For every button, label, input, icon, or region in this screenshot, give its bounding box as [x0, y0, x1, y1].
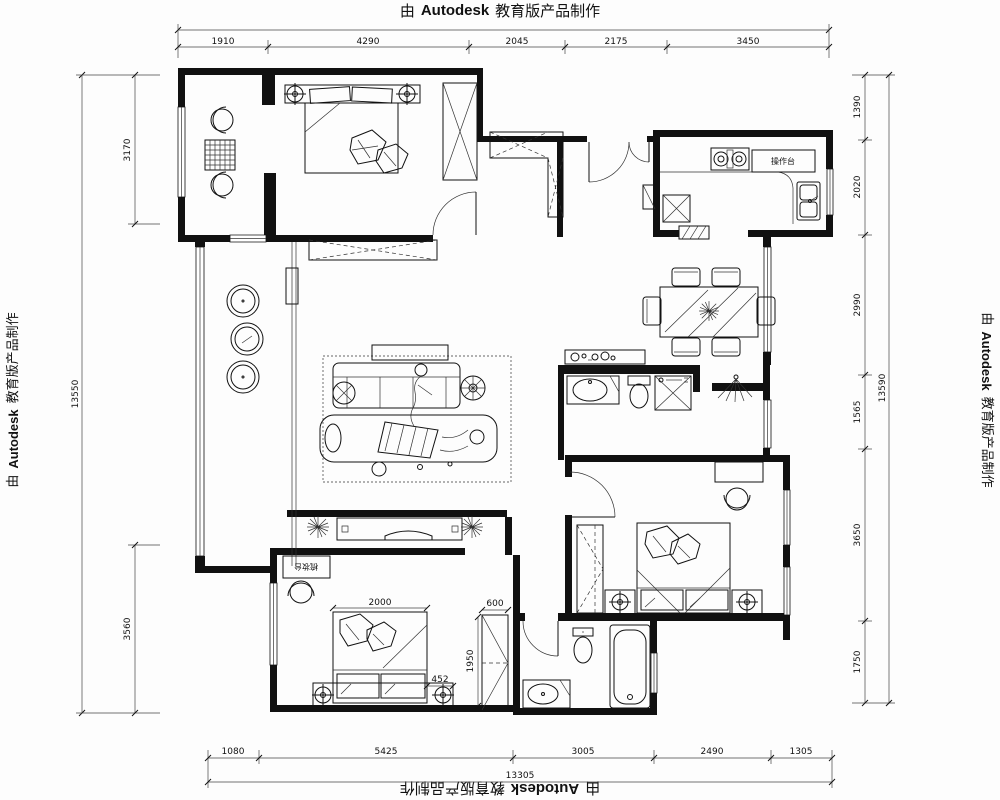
- door-bedroom-southeast: [570, 472, 615, 517]
- dim-label: 1080: [222, 747, 245, 757]
- dimension-chain-right: 1390 2020 2990 1565 3650 1750 13590: [852, 72, 895, 706]
- fridge: [663, 195, 690, 222]
- toilet-main: [628, 376, 650, 408]
- side-table-left: [333, 382, 355, 404]
- door-bathroom-south: [523, 621, 558, 656]
- dim-label: 600: [486, 599, 503, 609]
- window: [784, 567, 790, 615]
- wardrobe-sw: [482, 615, 508, 710]
- dim-label: 1910: [212, 37, 235, 47]
- dimension-chain-bottom: 1080 5425 3005 2490 1305 13305: [205, 747, 835, 788]
- dim-label: 1750: [853, 650, 863, 673]
- window: [651, 653, 657, 693]
- bathtub: [610, 625, 650, 708]
- dim-label: 2045: [506, 37, 529, 47]
- dim-label: 3450: [737, 37, 760, 47]
- kitchen-fixtures: 操作台: [643, 148, 820, 239]
- bedroom-southeast: [577, 462, 763, 614]
- dim-label: 1390: [853, 95, 863, 118]
- vanity-counter: [565, 350, 645, 364]
- tv-cabinet: [337, 518, 462, 540]
- floorplan-drawing: 操作台: [0, 0, 1000, 800]
- dressing-table: 梳妆台: [283, 556, 330, 578]
- dressing-table-label: 梳妆台: [294, 562, 318, 572]
- window: [764, 400, 771, 448]
- bathroom-main: [565, 350, 752, 410]
- window: [784, 490, 790, 545]
- dim-label: 3560: [123, 617, 133, 640]
- worktop-label: 操作台: [752, 150, 815, 172]
- dim-label: 452: [431, 675, 448, 685]
- window: [270, 583, 277, 665]
- dim-total-label: 13590: [878, 373, 888, 402]
- dim-label: 1305: [790, 747, 813, 757]
- wardrobe-se: [577, 525, 603, 613]
- door-entrance: [589, 142, 649, 182]
- dim-label: 5425: [375, 747, 398, 757]
- dim-label: 2020: [853, 175, 863, 198]
- bed-southeast: [637, 523, 730, 613]
- person-sitting: [411, 364, 432, 426]
- window: [196, 247, 204, 556]
- sink: [797, 182, 820, 220]
- dim-label: 3650: [853, 523, 863, 546]
- window: [178, 107, 185, 197]
- dim-label: 2990: [853, 293, 863, 316]
- stove: [711, 148, 749, 170]
- bathroom-south: [523, 625, 650, 708]
- dim-total-label: 13305: [506, 771, 535, 781]
- doors: [433, 142, 649, 656]
- washbasin: [567, 376, 619, 404]
- window: [230, 235, 266, 242]
- washing-machine: [655, 376, 691, 410]
- washbasin-south: [523, 680, 570, 708]
- dimension-chain-top: 1910 4290 2045 2175 3450: [175, 24, 832, 58]
- bed-master: [305, 87, 408, 173]
- dim-label: 2490: [701, 747, 724, 757]
- window: [827, 169, 833, 215]
- dim-label: 1950: [466, 649, 476, 672]
- dim-label: 3170: [123, 138, 133, 161]
- floorplan-canvas: 由Autodesk教育版产品制作 由Autodesk教育版产品制作 由Autod…: [0, 0, 1000, 800]
- dining-set: [643, 268, 775, 356]
- dim-total-label: 13550: [71, 379, 81, 408]
- study-furniture: [205, 107, 235, 198]
- dimension-chain-left: 13550 3170 3560: [71, 72, 160, 716]
- master-bedroom-furniture: [284, 83, 477, 260]
- dim-label: 2000: [369, 598, 392, 608]
- door-master-bedroom: [433, 192, 476, 235]
- dim-label: 1565: [853, 401, 863, 424]
- dim-label: 4290: [357, 37, 380, 47]
- dim-label: 2175: [605, 37, 628, 47]
- entry-closet: [490, 132, 563, 217]
- person-lying: [440, 430, 484, 451]
- kitchen-counter-label: 操作台: [771, 156, 795, 166]
- window: [764, 247, 771, 352]
- toilet-south: [573, 628, 593, 663]
- chaise-lounge: [320, 415, 497, 462]
- wardrobe-master: [443, 83, 477, 180]
- dim-label: 3005: [572, 747, 595, 757]
- side-table-right: [461, 376, 485, 400]
- balcony-pots: [227, 285, 263, 393]
- hatched-table: [205, 140, 235, 170]
- bedroom-southwest: 梳妆台: [283, 556, 508, 710]
- bed-southwest: [333, 612, 427, 703]
- closet-strip: [309, 240, 437, 260]
- kitchen-sliding-door: [679, 226, 709, 239]
